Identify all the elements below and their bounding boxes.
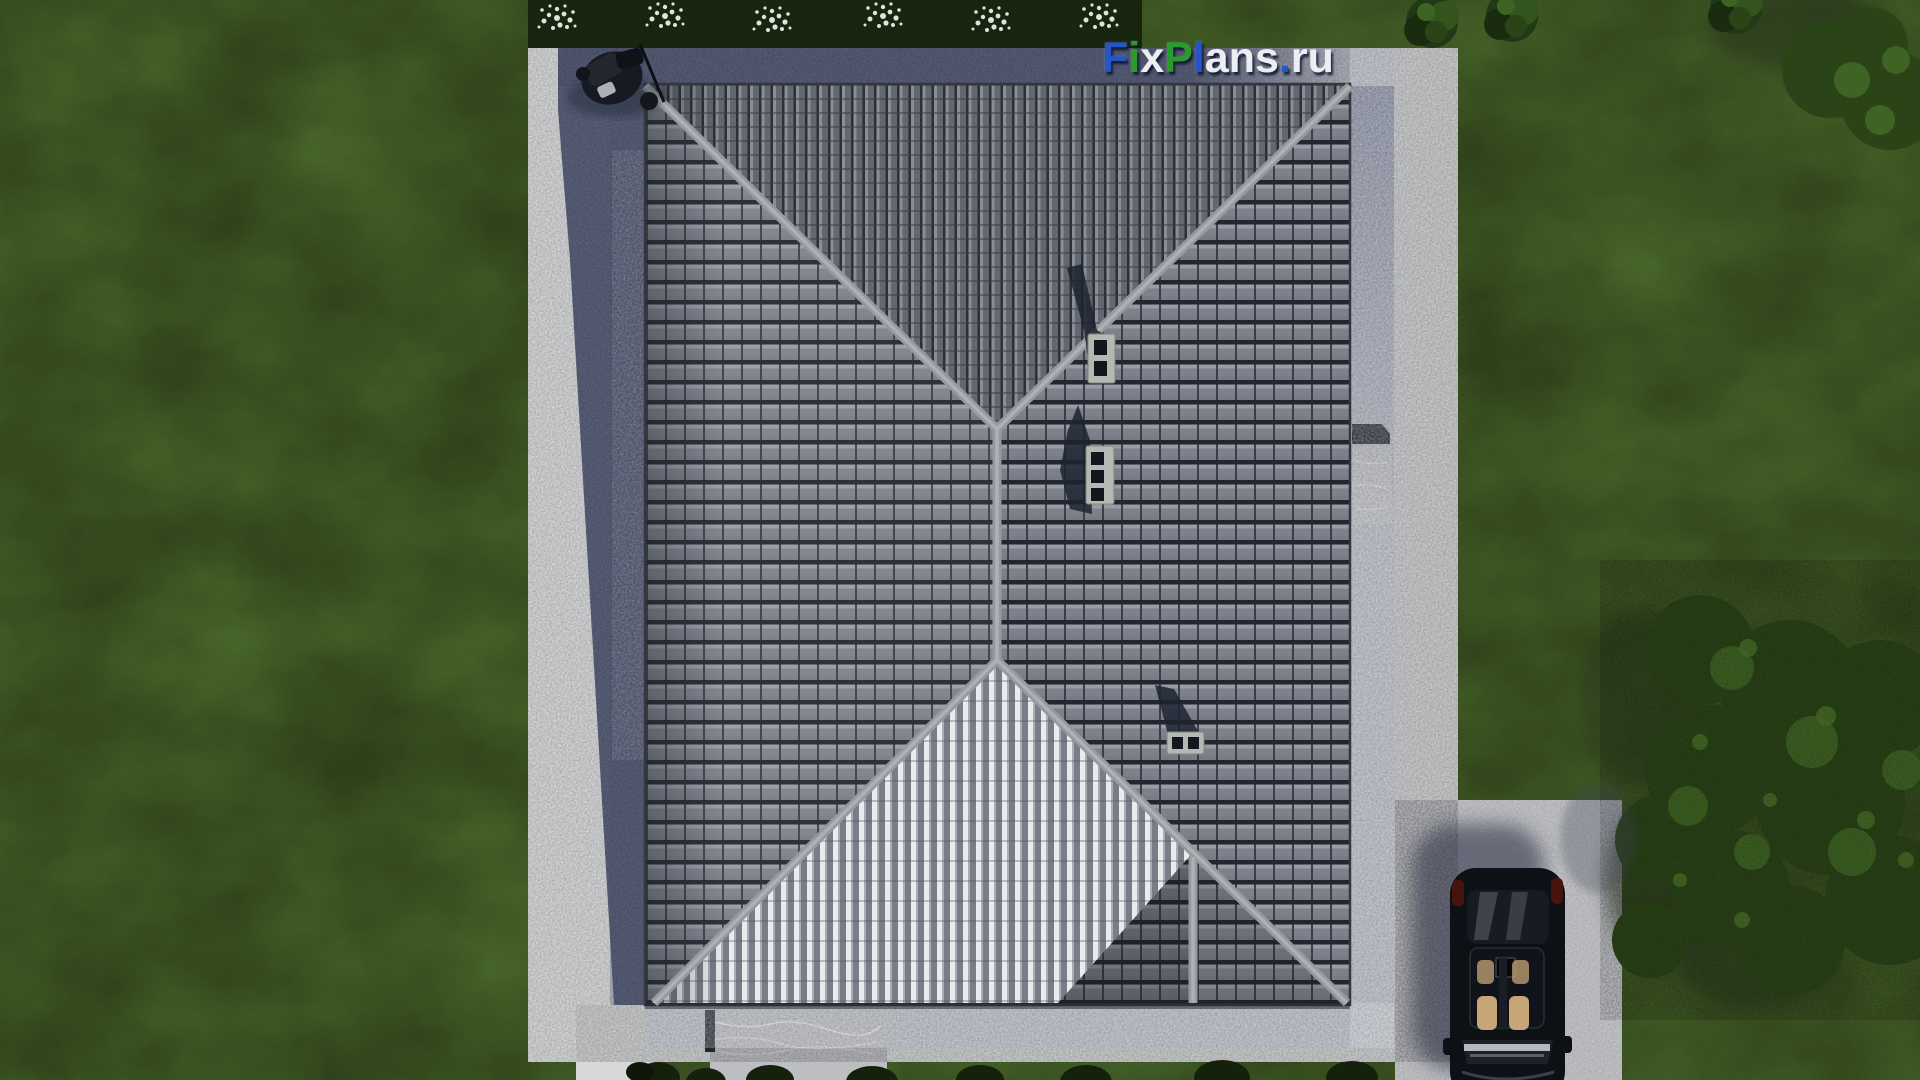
- car-taillight-right: [1551, 878, 1563, 904]
- fixplans-watermark: FixPlans.ru: [1102, 34, 1334, 83]
- logo-letter: s: [1255, 34, 1279, 83]
- logo-letter: r: [1291, 34, 1308, 83]
- driveway-tree-shadow: [1560, 783, 1636, 893]
- logo-letter: n: [1229, 34, 1255, 83]
- scene-canvas: [0, 0, 1920, 1080]
- right-tree-cluster: [1580, 560, 1920, 1020]
- top-hedge: [528, 0, 1142, 48]
- logo-letter: x: [1140, 34, 1164, 83]
- logo-letter: i: [1128, 34, 1140, 83]
- logo-letter: P: [1164, 34, 1193, 83]
- house-roof: [567, 43, 1351, 1009]
- car-taillight-left: [1452, 880, 1464, 906]
- logo-letter: l: [1193, 34, 1205, 83]
- car-mirror-right: [1561, 1036, 1572, 1053]
- logo-letter: .: [1279, 34, 1291, 83]
- logo-letter: u: [1308, 34, 1334, 83]
- logo-letter: a: [1205, 34, 1229, 83]
- aerial-render-scene: FixPlans.ru: [0, 0, 1920, 1080]
- car-windshield: [1462, 1040, 1553, 1064]
- car-mirror-left: [1443, 1038, 1454, 1055]
- logo-letter: F: [1102, 34, 1128, 83]
